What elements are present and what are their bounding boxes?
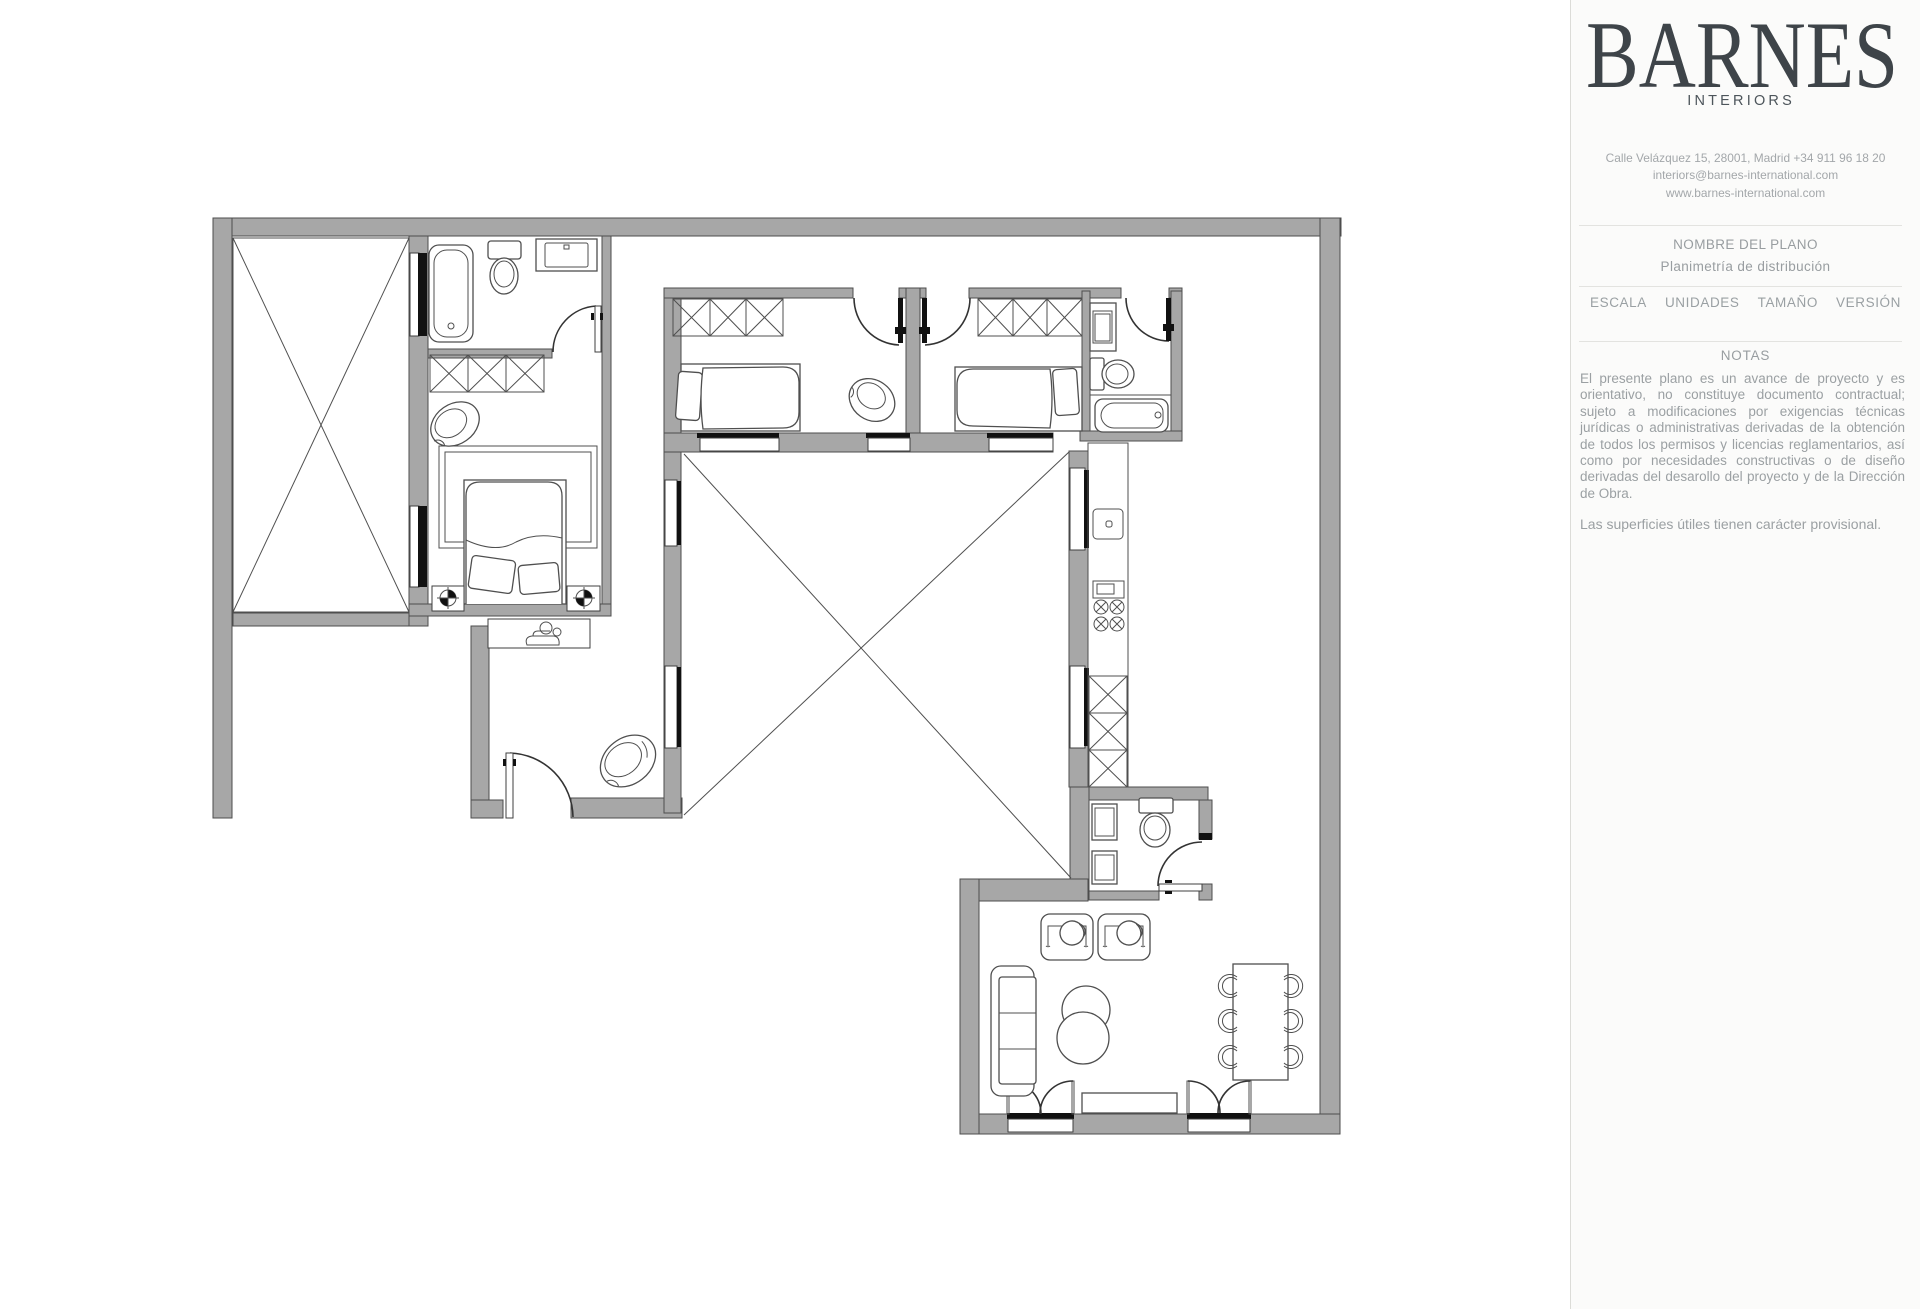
- svg-text:BARNES: BARNES: [1586, 2, 1898, 92]
